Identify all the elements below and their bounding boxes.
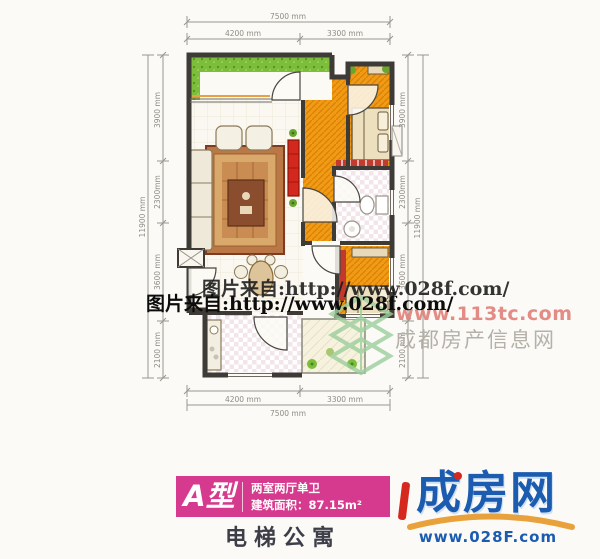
kitchen-counter [207,320,221,370]
building-type-label: 电梯公寓 [176,520,390,552]
dim-left-3: 3600 mm [153,254,162,290]
bay-window-box [178,249,204,267]
dim-left-4: 2100 mm [153,332,162,368]
portal-name: 成都房产信息网 [395,324,556,354]
unit-layout: 两室两厅单卫 [251,480,362,497]
armchair [216,126,242,150]
coffee-table [228,180,264,226]
door-arc [312,246,340,274]
dim-left-1: 3900 mm [153,92,162,128]
dim-top-left: 4200 mm [225,29,261,38]
unit-area: 建筑面积：87.15m² [251,497,362,514]
dim-left-2: 2300mm [153,175,162,209]
dim-top-total: 7500 mm [270,12,306,21]
sink [344,221,360,237]
brand-logo: 成房网 www.028F.com [398,466,593,556]
sofa [190,150,212,250]
armchair [246,126,272,150]
balcony-planting-strip [189,57,332,72]
floorplan-page: 7500 mm 4200 mm 3300 mm 4200 mm 3300 mm … [0,0,600,559]
dim-right-2: 2300mm [398,175,407,209]
ac-platform [392,126,402,156]
dim-top-right: 3300 mm [327,29,363,38]
floor-plan: 7500 mm 4200 mm 3300 mm 4200 mm 3300 mm … [0,0,600,465]
dim-bottom-left: 4200 mm [225,395,261,404]
unit-type-label: A型 [176,482,242,511]
master-bed [352,108,390,160]
brand-accent-dot [454,472,462,480]
tv-cabinet [288,140,299,196]
dim-right-total: 11900 mm [413,198,422,239]
dim-bottom-total: 7500 mm [270,409,306,418]
brand-name: 成房网 [416,470,557,515]
brand-url: www.028F.com [398,528,578,546]
dim-right-1: 3900 mm [398,92,407,128]
unit-type-card: A型 两室两厅单卫 建筑面积：87.15m² [176,476,390,517]
unit-description: 两室两厅单卫 建筑面积：87.15m² [243,480,362,513]
dresser [352,248,388,257]
dim-left-total: 11900 mm [138,197,147,238]
watermark-source-text: 图片来自:http://www.028f.com/ [146,289,453,316]
dim-bottom-right: 3300 mm [327,395,363,404]
